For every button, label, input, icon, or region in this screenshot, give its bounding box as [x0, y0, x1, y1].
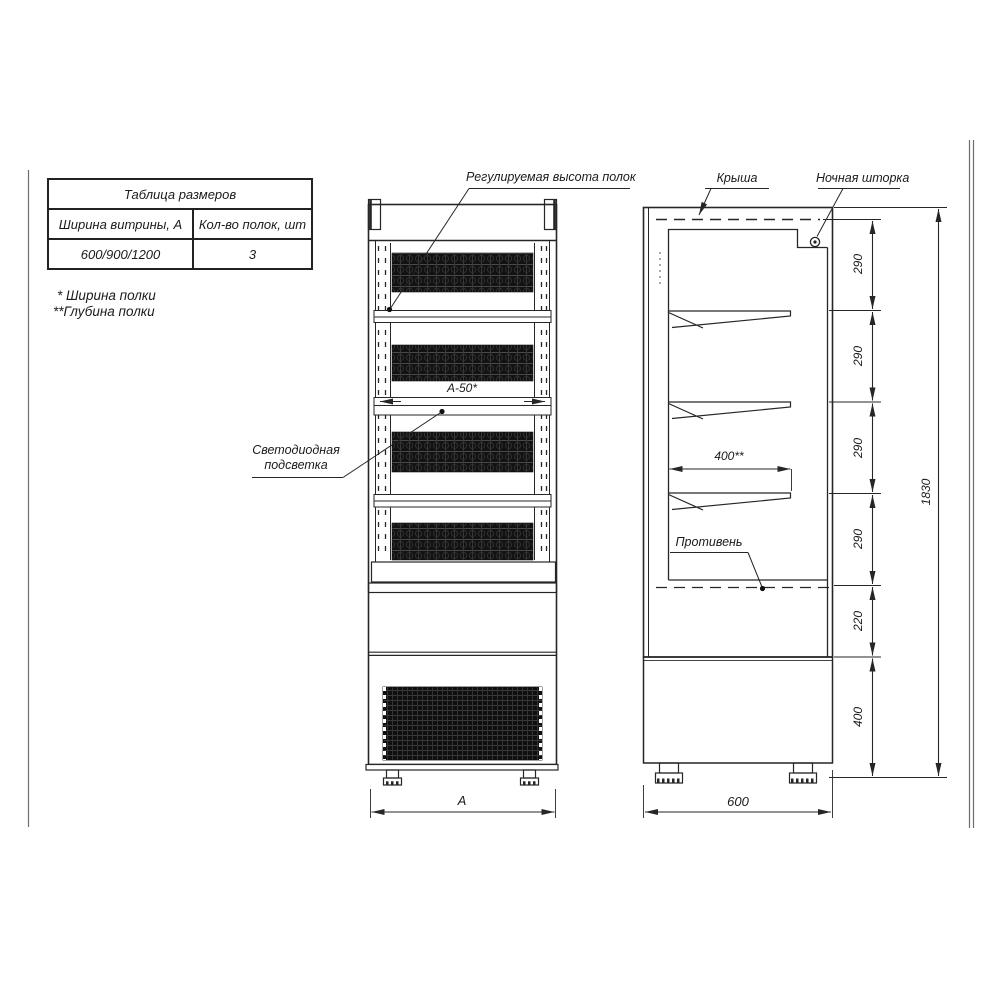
value-shelf-count: 3: [194, 240, 311, 268]
night-curtain-roller: [810, 237, 819, 246]
dim-front-width: А: [446, 793, 478, 808]
side-feet: [656, 763, 817, 783]
ventilation-grille: [383, 687, 542, 760]
dim-shelf-depth: 400**: [697, 449, 761, 463]
size-table-title: Таблица размеров: [49, 180, 311, 208]
dim-total-height: 1830: [919, 469, 933, 515]
callout-led-line1: Светодиодная: [248, 443, 344, 458]
size-table-value-row: 600/900/1200 3: [49, 240, 311, 268]
dim-spacing-3: 290: [851, 428, 865, 468]
callout-led-light: Светодиодная подсветка: [248, 443, 344, 473]
column-header-shelves: Кол-во полок, шт: [194, 210, 311, 238]
footnote-shelf-width: * Ширина полки: [57, 288, 156, 303]
value-width-options: 600/900/1200: [49, 240, 194, 268]
dim-tray-zone: 220: [851, 601, 865, 641]
front-shelf-bars: [374, 311, 551, 508]
side-shelves: [669, 311, 791, 510]
size-table-header-row: Ширина витрины, А Кол-во полок, шт: [49, 210, 311, 240]
side-outer-body: [644, 208, 833, 658]
drawing-sheet: Таблица размеров Ширина витрины, А Кол-в…: [0, 0, 1000, 1000]
callout-night-curtain: Ночная шторка: [816, 171, 902, 185]
dim-spacing-2: 290: [851, 336, 865, 376]
shelf-depth-dimension: [670, 469, 792, 491]
size-table: Таблица размеров Ширина витрины, А Кол-в…: [47, 178, 313, 270]
size-table-title-row: Таблица размеров: [49, 180, 311, 210]
side-base: [644, 657, 833, 763]
side-view: [644, 208, 948, 819]
inner-chamber: [669, 230, 828, 581]
dim-cabinet-depth: 600: [712, 794, 764, 809]
dim-shelf-width: А-50*: [428, 381, 496, 395]
front-lower-panels: [369, 562, 557, 655]
footnote-shelf-depth: **Глубина полки: [53, 304, 155, 319]
front-view: [366, 200, 558, 819]
callout-roof: Крыша: [707, 171, 767, 185]
column-header-width: Ширина витрины, А: [49, 210, 194, 238]
callout-shelf-height: Регулируемая высота полок: [466, 170, 632, 184]
dim-spacing-4: 290: [851, 519, 865, 559]
dim-spacing-1: 290: [851, 244, 865, 284]
callout-led-line2: подсветка: [248, 458, 344, 473]
callout-tray: Противень: [671, 535, 747, 549]
dim-base-height: 400: [851, 697, 865, 737]
callout-leaders: [252, 189, 900, 592]
technical-drawing: [0, 0, 1000, 1000]
front-feet: [366, 765, 558, 786]
